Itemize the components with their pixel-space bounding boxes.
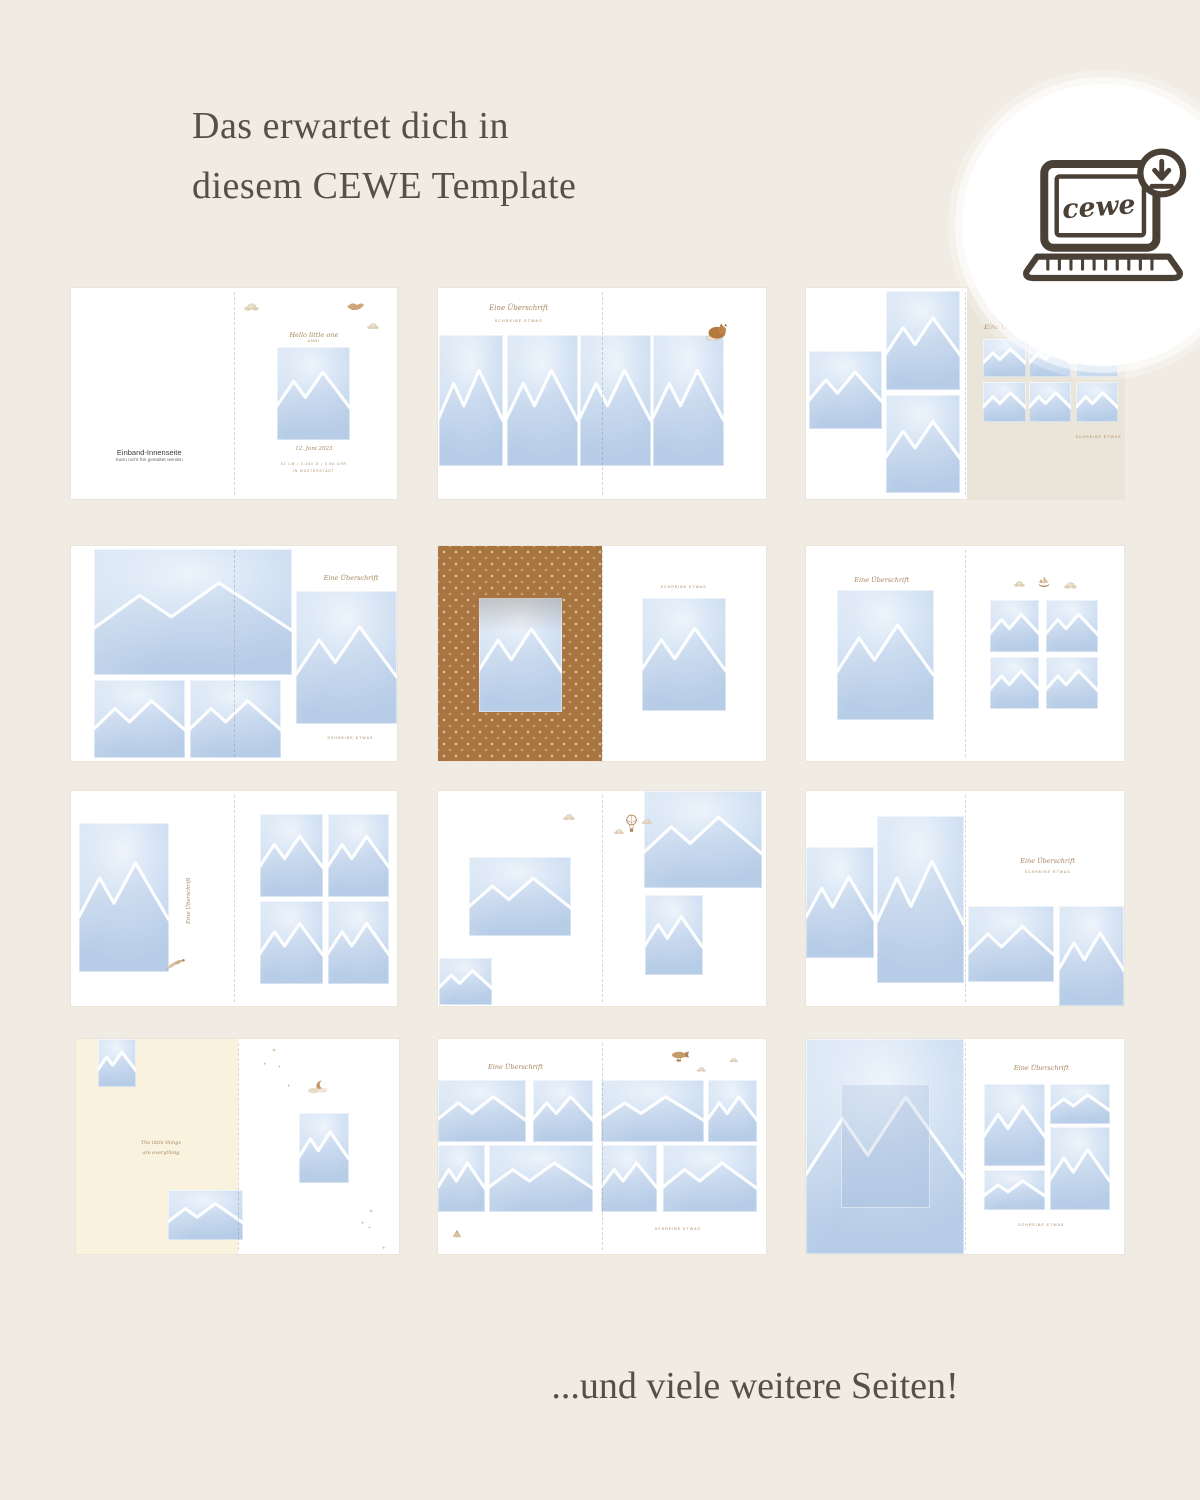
photo-placeholder (439, 335, 503, 466)
moon-cloud-icon (307, 1080, 329, 1094)
photo-placeholder (94, 549, 292, 675)
spread-gutter (234, 550, 235, 756)
photo-placeholder (984, 1084, 1045, 1166)
spread-thumb-9: Eine Überschrift Schreibe etwas (805, 790, 1125, 1007)
cover-name: Anni (308, 339, 321, 343)
star-icon (263, 1062, 267, 1066)
photo-placeholder (1076, 382, 1118, 422)
photo-placeholder (507, 335, 578, 466)
photo-placeholder (663, 1145, 757, 1212)
star-icon (368, 1226, 371, 1229)
shell-icon (451, 1229, 463, 1238)
photo-placeholder (489, 1145, 593, 1212)
photo-placeholder (438, 1080, 526, 1142)
spread-thumb-2: Eine Überschrift Schreibe etwas (437, 287, 767, 500)
photo-placeholder (983, 382, 1026, 422)
photo-placeholder (837, 590, 933, 720)
spread-heading-vertical: Eine Überschrift (186, 878, 192, 924)
spread-gutter (602, 1043, 603, 1249)
photo-placeholder (1046, 600, 1098, 653)
photo-placeholder (296, 591, 397, 723)
spread-gutter (234, 292, 235, 495)
photo-placeholder (601, 1080, 704, 1142)
spread-thumb-5: Schreibe etwas (437, 545, 767, 762)
spread-subheading: Schreibe etwas (1025, 870, 1071, 874)
flower-branch-icon (166, 956, 186, 972)
spread-gutter (602, 292, 603, 495)
spread-gutter (238, 1043, 239, 1249)
spread-thumb-4: Eine Überschrift Schreibe etwas (70, 545, 398, 762)
photo-placeholder (190, 680, 282, 757)
photo-placeholder (94, 680, 185, 757)
star-icon (278, 1065, 281, 1068)
star-icon (272, 1048, 276, 1052)
zeppelin-icon (670, 1051, 690, 1062)
footer-text: ...und viele weitere Seiten! (551, 1364, 958, 1408)
photo-placeholder (439, 958, 492, 1005)
spread-heading: Eine Überschrift (1014, 1064, 1069, 1072)
spread-gutter (965, 795, 966, 1001)
photo-placeholder (438, 1145, 485, 1212)
cover-date: 12. Juni 2023 (295, 446, 332, 452)
photo-placeholder (168, 1190, 243, 1240)
spread-thumb-10: The little things are everything (75, 1038, 400, 1255)
spread-heading: Eine Überschrift (324, 574, 379, 582)
spread-thumb-6: Eine Überschrift (805, 545, 1125, 762)
spread-thumb-11: Eine Überschrift Schreibe etwas (437, 1038, 767, 1255)
photo-placeholder (642, 598, 726, 711)
page-title-line2: diesem CEWE Template (192, 156, 576, 216)
cover-place: in Musterstadt (293, 469, 335, 473)
spread-gutter (602, 795, 603, 1001)
photo-placeholder (644, 791, 762, 888)
spread-heading: Eine Überschrift (488, 1063, 543, 1071)
spread-gutter (965, 1043, 966, 1249)
page-title-line1: Das erwartet dich in (192, 96, 576, 156)
spread-thumb-8 (437, 790, 767, 1007)
cloud-icon (562, 814, 575, 821)
photo-placeholder (1046, 657, 1098, 708)
photo-placeholder (990, 657, 1040, 708)
photo-placeholder (299, 1113, 348, 1183)
photo-placeholder (877, 816, 964, 983)
spread-thumb-12: Eine Überschrift Schreibe etwas (805, 1038, 1125, 1255)
cloud-icon (613, 829, 624, 835)
quote-line2: are everything (142, 1150, 179, 1156)
cloud-icon (1063, 582, 1077, 589)
spread-subheading: Schreibe etwas (327, 736, 373, 740)
cloud-icon (366, 323, 379, 330)
photo-placeholder (984, 1170, 1045, 1210)
promo-graphic: { "page": { "background": "#f1ece3", "ti… (0, 0, 1200, 1500)
cewe-download-badge: cewe (962, 84, 1200, 366)
spread-heading: Eine Überschrift (489, 304, 548, 312)
bird-icon (345, 300, 365, 312)
photo-placeholder (806, 847, 874, 959)
sailboat-icon (1035, 576, 1053, 590)
photo-placeholder (328, 901, 389, 984)
download-icon (1140, 152, 1183, 195)
star-icon (369, 1209, 373, 1213)
spread-subheading: Schreibe etwas (1018, 1223, 1064, 1227)
spread-gutter (234, 795, 235, 1001)
cloud-icon (1013, 581, 1025, 587)
photo-placeholder (968, 906, 1054, 982)
photo-placeholder (990, 600, 1040, 653)
photo-placeholder (1059, 906, 1124, 1006)
photo-placeholder (580, 335, 651, 466)
photo-placeholder (886, 395, 960, 493)
photo-placeholder (260, 814, 323, 897)
cover-title: Einband-Innenseite (117, 448, 182, 457)
spread-subheading: Schreibe etwas (495, 319, 543, 323)
quote-line1: The little things (141, 1140, 181, 1146)
spread-gutter (965, 550, 966, 756)
photo-placeholder (328, 814, 389, 897)
photo-placeholder (479, 598, 562, 712)
photo-placeholder (277, 347, 350, 440)
hot-air-balloon-icon (625, 814, 638, 835)
sleeping-fox-icon (704, 323, 730, 341)
photo-placeholder (1029, 382, 1071, 422)
cover-subtitle: Kann nicht frei gestaltet werden (116, 458, 183, 463)
spread-subheading: Schreibe etwas (655, 1227, 701, 1231)
page-title: Das erwartet dich in diesem CEWE Templat… (192, 96, 576, 216)
cloud-icon (641, 819, 652, 825)
spread-thumb-7: Eine Überschrift (70, 790, 398, 1007)
photo-placeholder (708, 1080, 757, 1142)
photo-placeholder (1050, 1084, 1110, 1125)
photo-placeholder (809, 351, 882, 429)
spread-gutter (602, 550, 603, 756)
photo-placeholder (653, 335, 724, 466)
cewe-logo-text: cewe (1061, 189, 1136, 225)
photo-placeholder-inset (841, 1084, 930, 1209)
photo-placeholder (601, 1145, 657, 1212)
star-icon (287, 1084, 291, 1088)
star-icon (361, 1221, 365, 1225)
photo-placeholder (79, 823, 169, 972)
photo-placeholder (645, 895, 702, 975)
cloud-icon (696, 1067, 706, 1072)
cover-greeting: Hello little one (289, 331, 338, 339)
photo-placeholder (260, 901, 323, 984)
photo-placeholder (469, 857, 571, 936)
spread-heading: Eine Überschrift (1020, 857, 1075, 865)
spread-thumb-cover-inner: Einband-Innenseite Kann nicht frei gesta… (70, 287, 398, 500)
photo-placeholder (98, 1039, 136, 1087)
photo-placeholder (533, 1080, 593, 1142)
cloud-icon (243, 303, 259, 311)
cewe-laptop-download-icon: cewe (1014, 142, 1192, 292)
photo-placeholder (886, 291, 960, 390)
star-icon (382, 1246, 386, 1250)
spread-heading: Eine Überschrift (854, 576, 909, 584)
spread-subheading: Schreibe etwas (1076, 435, 1122, 439)
spread-subheading: Schreibe etwas (661, 585, 707, 589)
cloud-icon (729, 1058, 738, 1063)
cover-stats: 52 cm | 3.450 g | 4:56 Uhr (281, 462, 347, 466)
photo-placeholder (1050, 1127, 1110, 1211)
